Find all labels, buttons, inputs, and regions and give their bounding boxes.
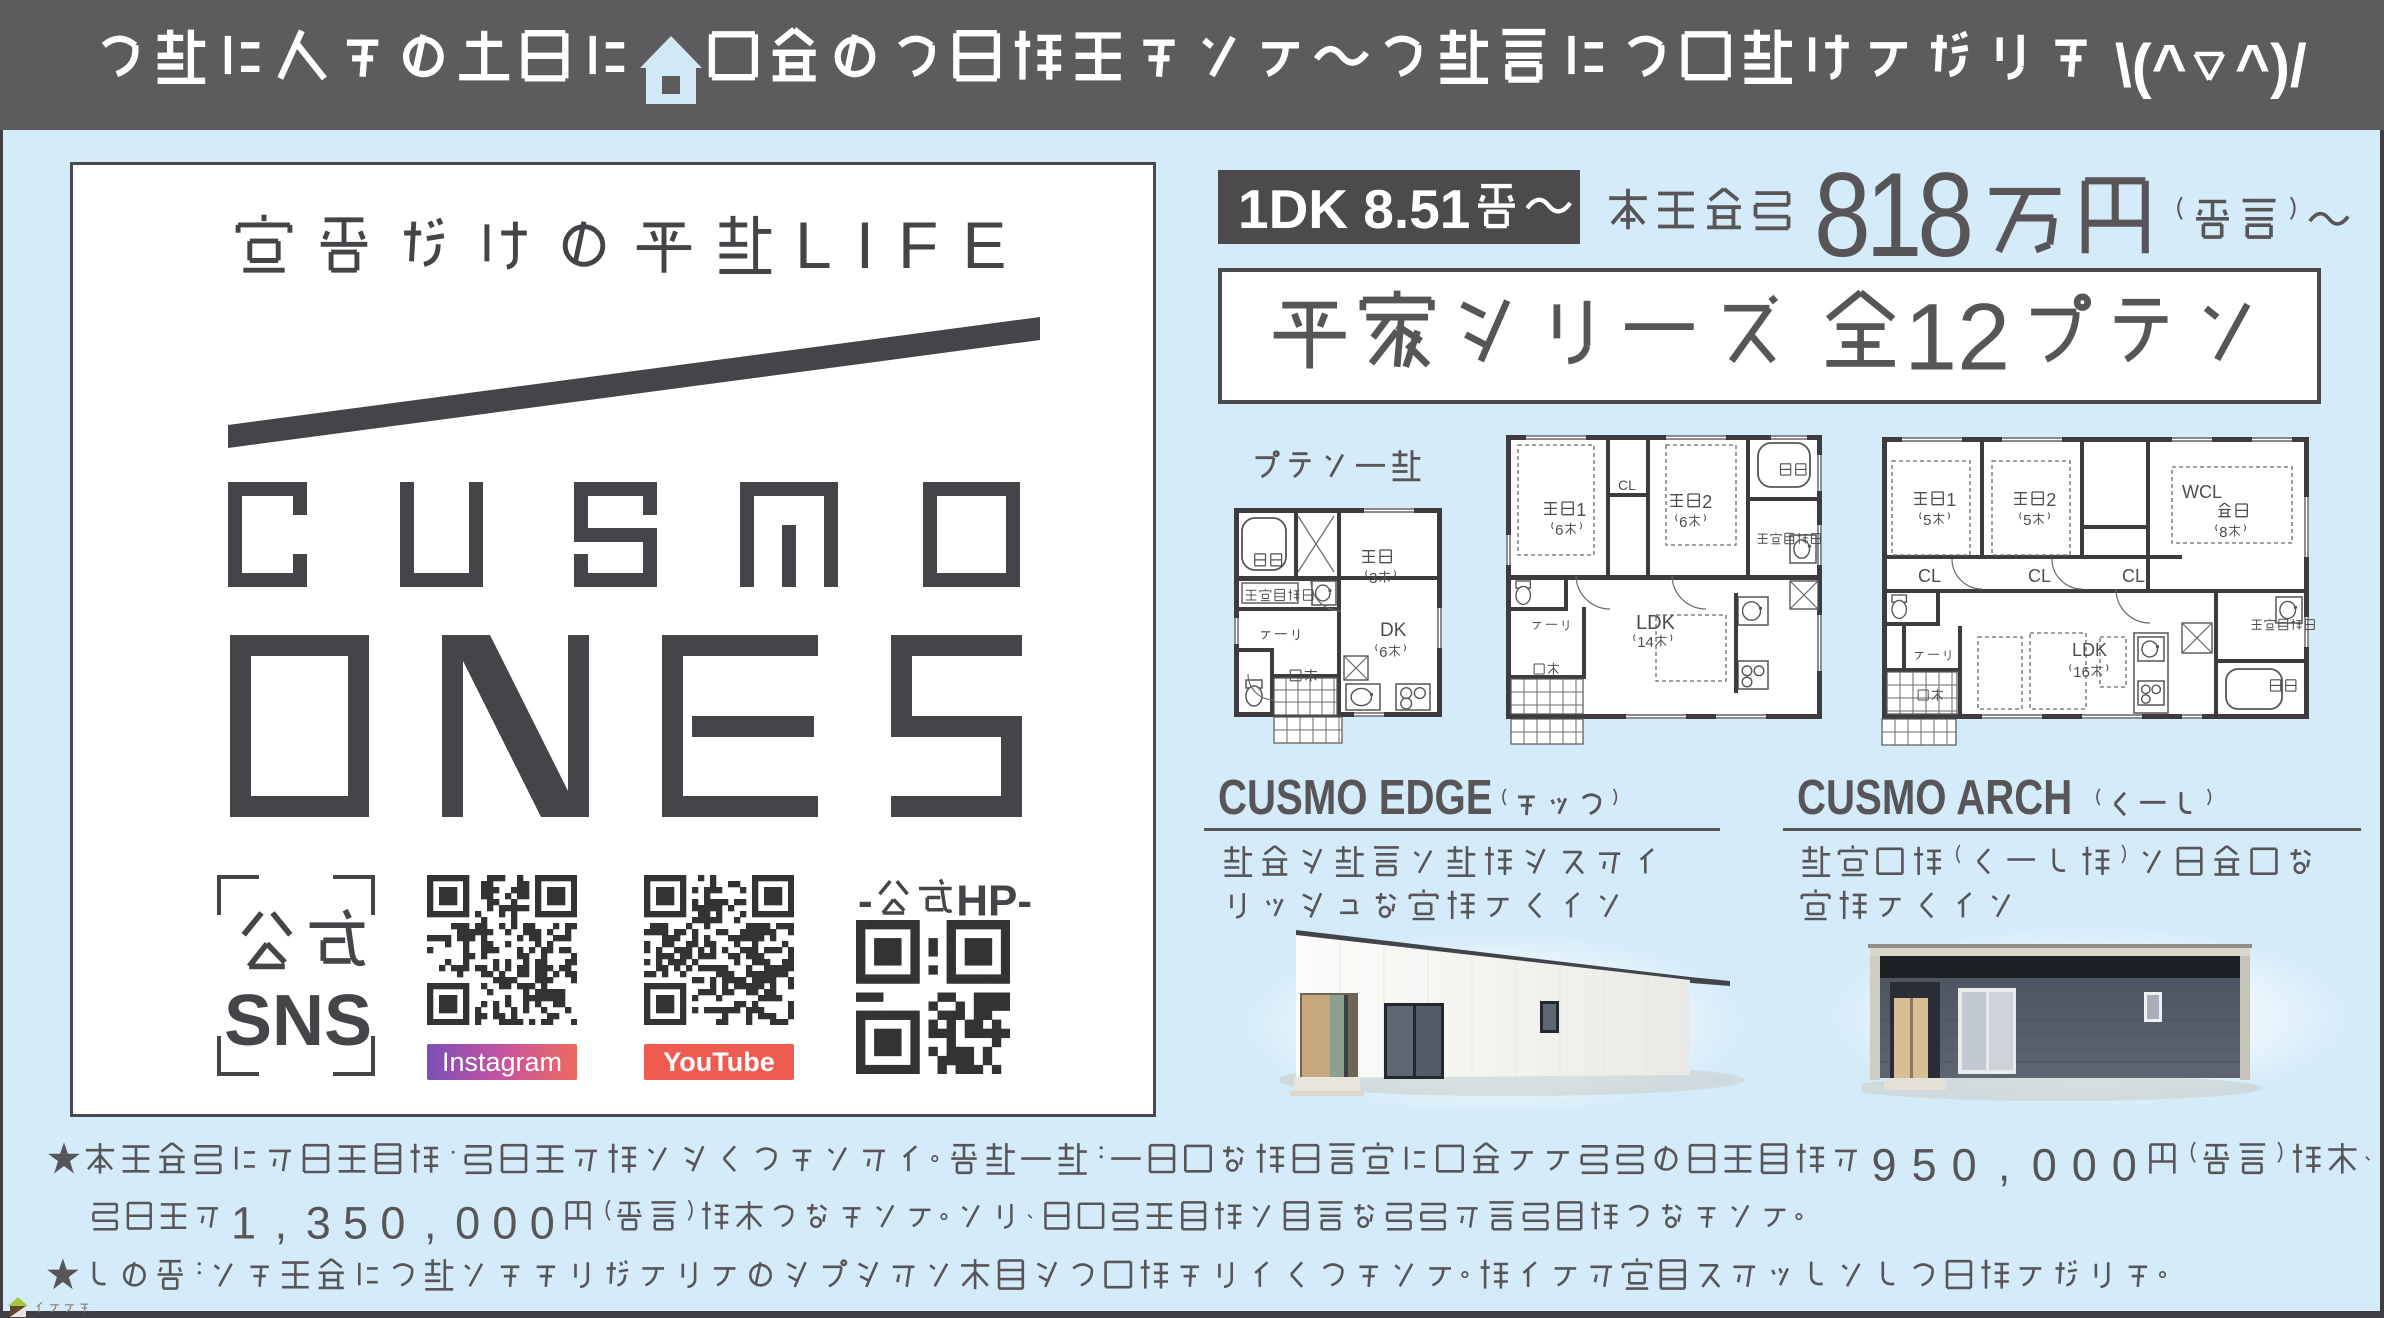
svg-text:2: 2 <box>1702 492 1712 512</box>
svg-text:P: P <box>988 877 1017 926</box>
svg-text:(: ( <box>2132 33 2152 100</box>
svg-text:9: 9 <box>1872 1139 1897 1190</box>
svg-text:6: 6 <box>1379 644 1387 661</box>
svg-text:1: 1 <box>1440 178 1471 240</box>
svg-text:-: - <box>1017 877 1032 926</box>
svg-text:-: - <box>858 877 873 926</box>
svg-text:0: 0 <box>1952 1139 1977 1190</box>
svg-text:,: , <box>275 1197 288 1248</box>
svg-text:F: F <box>898 208 938 282</box>
svg-text:1: 1 <box>2073 664 2081 681</box>
svg-text:5: 5 <box>343 1197 368 1248</box>
svg-text:6: 6 <box>2082 664 2090 681</box>
svg-text:0: 0 <box>380 1197 405 1248</box>
svg-text:L: L <box>795 208 832 282</box>
svg-text:5: 5 <box>1923 512 1931 529</box>
svg-text:\: \ <box>2115 33 2132 100</box>
svg-text:8: 8 <box>1363 178 1394 240</box>
svg-text:5: 5 <box>1409 178 1440 240</box>
svg-text:I: I <box>856 208 874 282</box>
svg-text:0: 0 <box>492 1197 517 1248</box>
svg-text:0: 0 <box>2032 1139 2057 1190</box>
svg-text:4: 4 <box>1646 634 1654 651</box>
svg-text:3: 3 <box>1369 570 1377 587</box>
svg-text:0: 0 <box>2112 1139 2137 1190</box>
svg-text:^: ^ <box>2235 33 2270 100</box>
svg-text:1: 1 <box>231 1197 256 1248</box>
svg-text:.: . <box>1394 178 1409 240</box>
svg-text:C: C <box>1618 477 1628 493</box>
svg-text:2: 2 <box>2046 490 2056 510</box>
svg-text:6: 6 <box>1679 514 1687 531</box>
svg-text:1: 1 <box>1576 500 1586 520</box>
svg-text:1: 1 <box>1904 284 1957 390</box>
svg-text:0: 0 <box>455 1197 480 1248</box>
svg-text:/: / <box>2290 33 2307 100</box>
svg-text:6: 6 <box>1555 522 1563 539</box>
svg-text:,: , <box>1998 1139 2011 1190</box>
svg-text:H: H <box>956 877 988 926</box>
svg-text:2: 2 <box>1957 284 2010 390</box>
svg-text:5: 5 <box>1912 1139 1937 1190</box>
svg-text:L: L <box>1628 477 1636 493</box>
svg-text:E: E <box>962 208 1006 282</box>
svg-text:1: 1 <box>1946 490 1956 510</box>
svg-text:1: 1 <box>1238 178 1269 240</box>
svg-text:3: 3 <box>306 1197 331 1248</box>
svg-text:K: K <box>1308 178 1348 240</box>
svg-text:5: 5 <box>2023 512 2031 529</box>
svg-text:^: ^ <box>2152 33 2187 100</box>
svg-text:1: 1 <box>1637 634 1645 651</box>
svg-text:,: , <box>424 1197 437 1248</box>
svg-text:): ) <box>2270 33 2290 100</box>
svg-text:0: 0 <box>530 1197 555 1248</box>
svg-text:D: D <box>1269 178 1309 240</box>
svg-text:0: 0 <box>2072 1139 2097 1190</box>
svg-text:8: 8 <box>2219 524 2227 541</box>
